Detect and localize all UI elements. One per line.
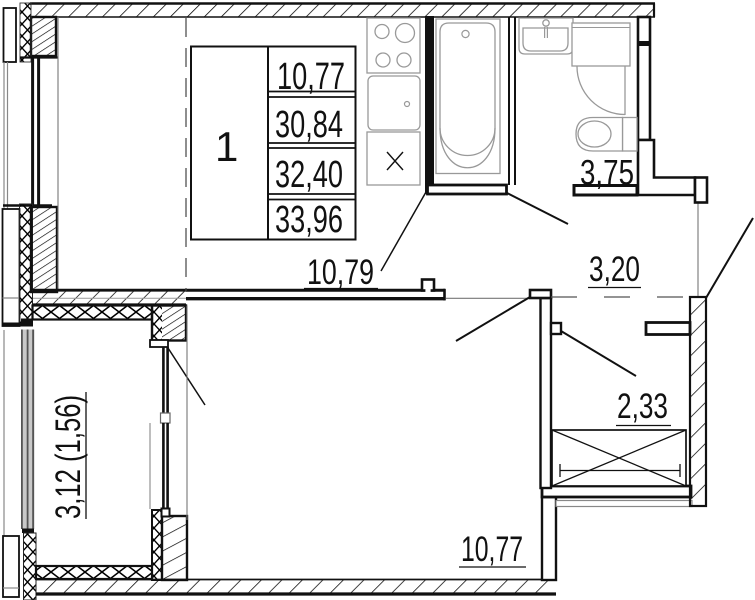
svg-text:1: 1 <box>215 123 238 170</box>
svg-text:33,96: 33,96 <box>275 199 343 241</box>
svg-text:32,40: 32,40 <box>275 154 343 196</box>
svg-text:30,84: 30,84 <box>275 104 343 146</box>
svg-text:10,77: 10,77 <box>277 56 345 98</box>
svg-text:3,12 (1,56): 3,12 (1,56) <box>49 395 88 519</box>
svg-text:3,75: 3,75 <box>580 154 634 193</box>
svg-text:3,20: 3,20 <box>589 250 640 289</box>
svg-text:10,77: 10,77 <box>461 530 523 569</box>
svg-text:10,79: 10,79 <box>307 253 374 292</box>
svg-text:2,33: 2,33 <box>617 387 668 426</box>
